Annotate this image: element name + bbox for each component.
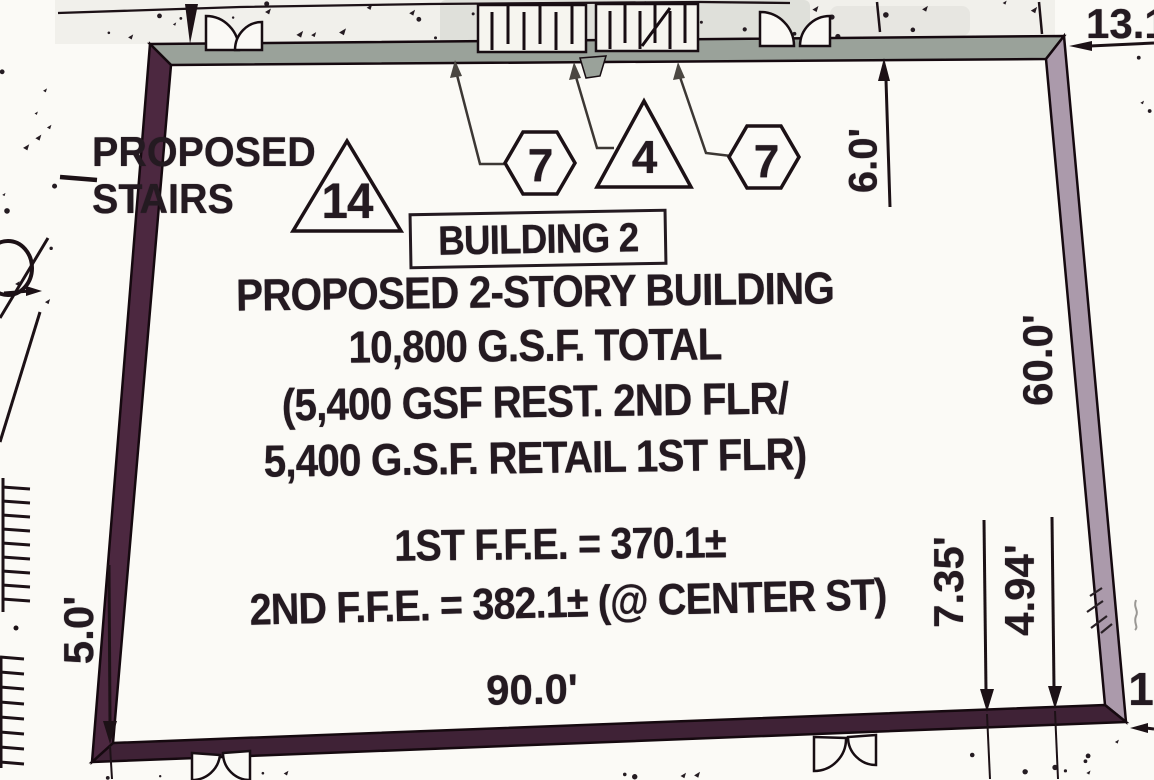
building-desc-line2: 10,800 G.S.F. TOTAL	[130, 316, 940, 375]
clipped-callout	[0, 241, 42, 296]
dim-right-lower-a: 7.35'	[925, 512, 973, 652]
ffe-line1: 1ST F.F.E. = 370.1±	[155, 516, 965, 574]
keynote-value-14: 14	[309, 172, 385, 230]
building-tag-box: BUILDING 2	[409, 209, 668, 269]
dim-top-right-offset: 6.0'	[842, 106, 887, 216]
building-desc-line1: PROPOSED 2-STORY BUILDING	[130, 261, 941, 323]
dim-right-lower-b: 4.94'	[996, 520, 1044, 660]
keynote-value-7a: 7	[500, 138, 580, 192]
exterior-stair-hatch-icon	[0, 478, 30, 768]
site-plan-scan: PROPOSED STAIRS BUILDING 2 PROPOSED 2-ST…	[0, 0, 1154, 780]
building-tag-label: BUILDING 2	[438, 214, 639, 264]
dim-bottom-width: 90.0'	[472, 665, 593, 715]
proposed-stairs-line2: STAIRS	[92, 175, 316, 222]
keynote-value-7b: 7	[726, 134, 806, 188]
dim-top-right-corner: 13.16	[1086, 0, 1154, 48]
property-line	[0, 238, 48, 442]
wall-pier	[580, 56, 606, 78]
proposed-stairs-label: PROPOSED STAIRS	[92, 128, 316, 222]
keynote-value-4: 4	[604, 130, 684, 184]
dim-left-offset: 5.0'	[55, 565, 103, 695]
dim-right-edge-partial: 1	[1126, 662, 1154, 716]
proposed-stairs-line1: PROPOSED	[92, 128, 316, 175]
dim-right-depth: 60.0'	[1014, 290, 1062, 430]
